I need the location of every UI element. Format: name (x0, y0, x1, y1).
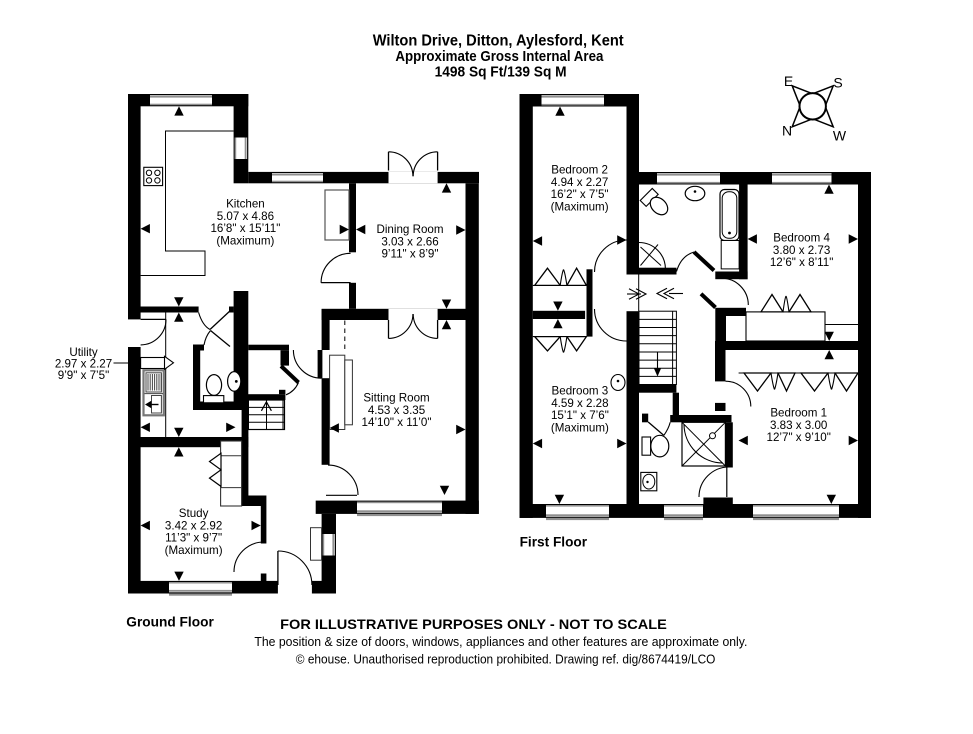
svg-text:Approximate Gross Internal Are: Approximate Gross Internal Area (395, 48, 604, 65)
svg-text:S: S (833, 74, 842, 90)
svg-text:Bedroom 34.59 x 2.2815’1" x 7’: Bedroom 34.59 x 2.2815’1" x 7’6"(Maximum… (551, 385, 609, 435)
svg-text:FOR ILLUSTRATIVE PURPOSES ONLY: FOR ILLUSTRATIVE PURPOSES ONLY - NOT TO … (280, 616, 667, 632)
svg-text:E: E (784, 73, 793, 89)
svg-text:Sitting Room4.53 x 3.3514’10": Sitting Room4.53 x 3.3514’10" x 11’0" (362, 392, 432, 430)
svg-text:The position & size of doors,: The position & size of doors, windows, a… (254, 634, 747, 649)
svg-text:N: N (782, 123, 792, 139)
svg-text:© ehouse. Unauthorised reprodu: © ehouse. Unauthorised reproduction proh… (296, 652, 716, 667)
svg-text:First Floor: First Floor (520, 534, 588, 550)
svg-text:Ground Floor: Ground Floor (126, 614, 214, 630)
svg-text:Dining Room3.03 x 2.669’11" x: Dining Room3.03 x 2.669’11" x 8’9" (376, 223, 443, 261)
svg-text:Bedroom 13.83 x 3.0012’7" x 9’: Bedroom 13.83 x 3.0012’7" x 9’10" (767, 407, 831, 445)
svg-text:1498 Sq Ft/139 Sq M: 1498 Sq Ft/139 Sq M (435, 63, 567, 80)
svg-text:Bedroom 24.94 x 2.2716’2" x 7’: Bedroom 24.94 x 2.2716’2" x 7’5"(Maximum… (551, 164, 609, 214)
svg-text:W: W (833, 127, 847, 143)
svg-text:Bedroom 43.80 x 2.7312’6" x 8’: Bedroom 43.80 x 2.7312’6" x 8’11" (770, 232, 833, 270)
